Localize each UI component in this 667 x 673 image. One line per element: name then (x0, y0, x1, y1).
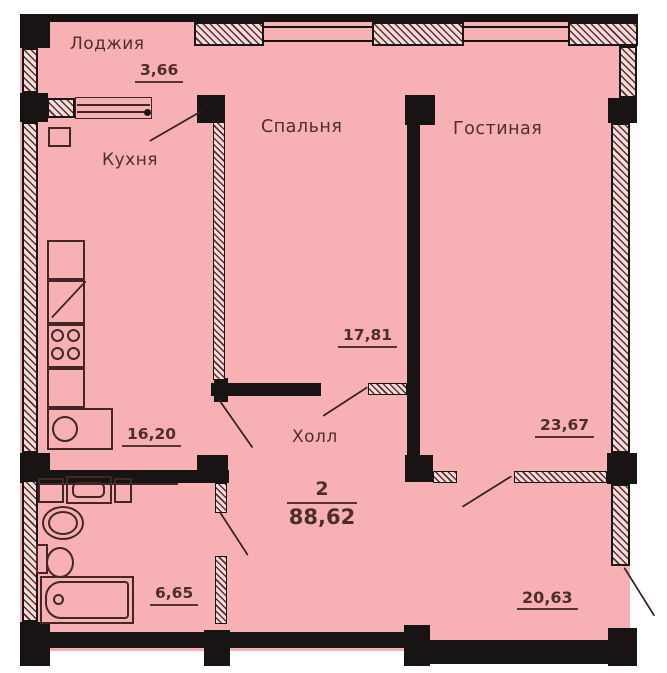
stove-burner (67, 329, 80, 342)
kitchen-counter (47, 240, 85, 280)
wall-pier-bathroom (197, 455, 228, 483)
hatched-wall-left-loggia (22, 48, 38, 93)
bathroom-cabinet (114, 478, 132, 503)
window-living (464, 26, 568, 42)
hatched-wall-living-door-left (433, 471, 457, 483)
hatched-pier-top-right (568, 22, 638, 46)
wall-pier-right-upper (608, 98, 637, 123)
hatched-wall-bathroom-right-bottom (215, 556, 227, 624)
fraction-line (287, 502, 357, 504)
hatched-wall-right-hall (611, 484, 630, 566)
stove-burner (51, 329, 64, 342)
hatched-wall-right-living (611, 123, 630, 453)
stove-burner (51, 347, 64, 360)
wall-pier-top-left (20, 14, 50, 48)
wall-pier-left-loggia (20, 93, 48, 122)
window-loggia-sill (75, 97, 152, 119)
window-loggia-sill-line (77, 104, 150, 106)
hatched-wall-right-top (619, 46, 637, 98)
door-hinge-dot (144, 109, 151, 116)
room-area-bathroom: 6,65 (150, 586, 198, 606)
room-area-hall: 20,63 (517, 590, 578, 610)
wall-pier-living-door (405, 455, 433, 482)
wall-top (20, 14, 638, 22)
hatched-block-loggia-sill (47, 98, 75, 118)
hatched-wall-left-kitchen (22, 122, 38, 453)
apartment-summary: 2 88,62 (283, 480, 361, 529)
total-area: 88,62 (283, 506, 361, 529)
wall-pier-bedroom-living-top (405, 95, 435, 125)
bathroom-sink-basin (48, 511, 78, 535)
wall-pier-bottom-hall (404, 625, 430, 666)
room-area-living: 23,67 (535, 418, 594, 438)
wall-bedroom-bottom (211, 383, 321, 396)
room-area-kitchen: 16,20 (122, 427, 181, 447)
kitchen-sink (52, 416, 78, 442)
wall-pier-bottom-mid (204, 630, 230, 666)
wall-bottom-right (428, 640, 610, 664)
hatched-wall-bathroom-right-top (215, 483, 227, 513)
floor-plan: Лоджия 3,66 Кухня 16,20 Спальня 17,81 Го… (0, 0, 667, 673)
room-label-bedroom: Спальня (261, 119, 342, 137)
rooms-count: 2 (283, 480, 361, 499)
bathtub-drain (53, 594, 64, 605)
hatched-wall-kitchen-bedroom (213, 122, 225, 380)
room-area-loggia: 3,66 (135, 63, 183, 83)
room-label-living: Гостиная (453, 121, 542, 139)
washing-machine (38, 478, 64, 503)
wall-bedroom-living-divider (407, 125, 420, 457)
bathroom-cabinet-basin (72, 482, 105, 498)
window-bedroom (264, 26, 372, 42)
room-label-hall: Холл (292, 429, 338, 446)
hatched-wall-living-bottom (514, 471, 607, 483)
hatched-pier-top-a (194, 22, 264, 46)
toilet-bowl (46, 547, 74, 578)
room-label-kitchen: Кухня (102, 152, 158, 169)
wall-pier-loggia-door (197, 95, 225, 123)
room-area-bedroom: 17,81 (338, 328, 397, 348)
stove-burner (67, 347, 80, 360)
room-label-loggia: Лоджия (70, 36, 145, 53)
wall-pier-bottom-right (608, 628, 637, 666)
window-loggia-sill-line (77, 111, 150, 113)
kitchen-vent-box (48, 127, 71, 147)
hatched-pier-top-b (372, 22, 464, 46)
hatched-wall-bedroom-door-jamb (368, 383, 407, 395)
kitchen-counter (47, 368, 85, 408)
wall-pier-right-mid (607, 453, 637, 484)
